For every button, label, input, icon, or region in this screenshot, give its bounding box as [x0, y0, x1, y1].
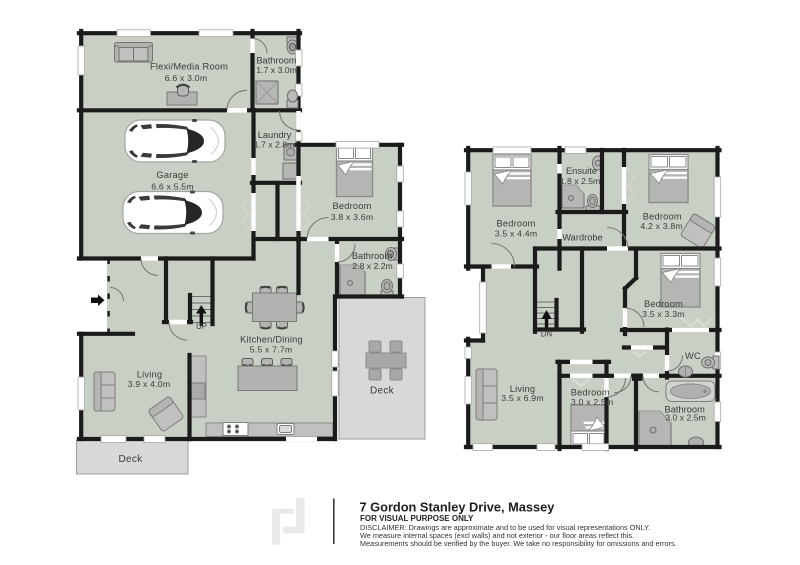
svg-text:2.8 x 2.2m: 2.8 x 2.2m [352, 261, 393, 271]
svg-text:Laundry: Laundry [258, 130, 292, 140]
svg-text:3.9 x 4.0m: 3.9 x 4.0m [128, 379, 171, 389]
svg-text:3.0 x 2.5m: 3.0 x 2.5m [665, 412, 706, 422]
svg-text:Ensuite: Ensuite [566, 166, 597, 176]
svg-text:Bedroom: Bedroom [332, 201, 371, 211]
svg-text:6.6 x 3.0m: 6.6 x 3.0m [165, 73, 208, 83]
svg-text:3.8 x 3.6m: 3.8 x 3.6m [331, 212, 374, 222]
svg-text:1.7 x 2.8m: 1.7 x 2.8m [254, 140, 295, 150]
svg-text:WC: WC [685, 351, 701, 361]
svg-text:Bathroom: Bathroom [256, 56, 297, 66]
svg-text:Bathroom: Bathroom [352, 251, 393, 261]
svg-text:7 Gordon Stanley Drive, Massey: 7 Gordon Stanley Drive, Massey [360, 500, 556, 515]
svg-text:Kitchen/Dining: Kitchen/Dining [240, 335, 303, 345]
svg-text:Bedroom: Bedroom [644, 299, 683, 309]
svg-text:Flexi/Media Room: Flexi/Media Room [150, 62, 228, 72]
svg-text:1.8 x 2.5m: 1.8 x 2.5m [560, 176, 601, 186]
svg-text:FOR VISUAL PURPOSE ONLY: FOR VISUAL PURPOSE ONLY [360, 514, 474, 523]
svg-text:DN: DN [541, 330, 552, 339]
svg-text:3.5 x 6.9m: 3.5 x 6.9m [501, 393, 544, 403]
svg-text:Deck: Deck [119, 454, 144, 465]
svg-text:Living: Living [137, 370, 163, 380]
svg-text:3.5 x 4.4m: 3.5 x 4.4m [495, 229, 538, 239]
svg-text:3.5 x 3.3m: 3.5 x 3.3m [642, 309, 685, 319]
svg-text:1.7 x 3.0m: 1.7 x 3.0m [256, 65, 297, 75]
svg-text:Garage: Garage [156, 170, 188, 180]
svg-text:4.2 x 3.8m: 4.2 x 3.8m [640, 221, 683, 231]
svg-text:5.5 x 7.7m: 5.5 x 7.7m [250, 345, 293, 355]
svg-text:Wardrobe: Wardrobe [562, 233, 602, 243]
svg-text:6.6 x 5.5m: 6.6 x 5.5m [151, 182, 194, 192]
svg-text:Deck: Deck [370, 386, 395, 397]
svg-text:3.0 x 2.5m: 3.0 x 2.5m [571, 397, 614, 407]
svg-text:UP: UP [196, 322, 207, 331]
svg-text:Bedroom: Bedroom [496, 218, 535, 228]
svg-text:Measurements should be verifie: Measurements should be verified by the b… [360, 539, 677, 548]
